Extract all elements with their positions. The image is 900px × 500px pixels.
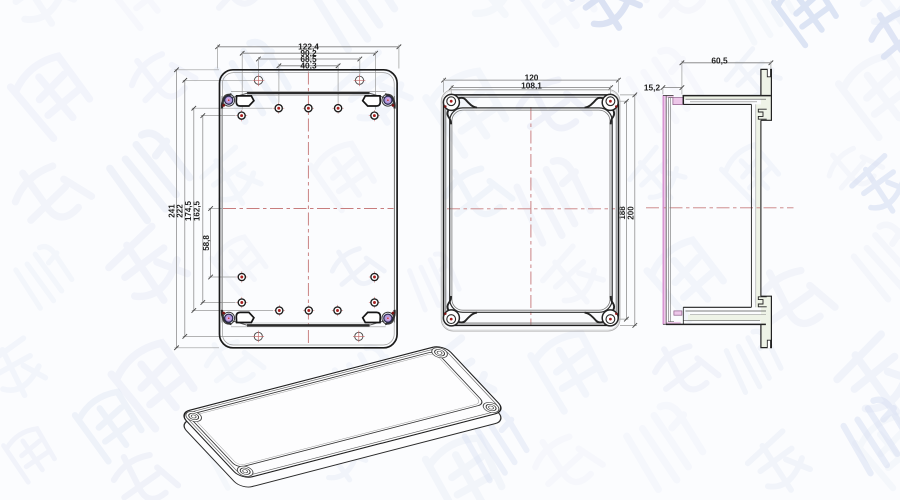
svg-text:108,1: 108,1: [521, 81, 542, 91]
svg-text:15,2: 15,2: [644, 83, 661, 93]
svg-text:162,5: 162,5: [192, 200, 201, 221]
svg-text:60,5: 60,5: [711, 55, 728, 65]
svg-text:58,8: 58,8: [202, 235, 211, 251]
svg-text:200: 200: [627, 206, 636, 220]
